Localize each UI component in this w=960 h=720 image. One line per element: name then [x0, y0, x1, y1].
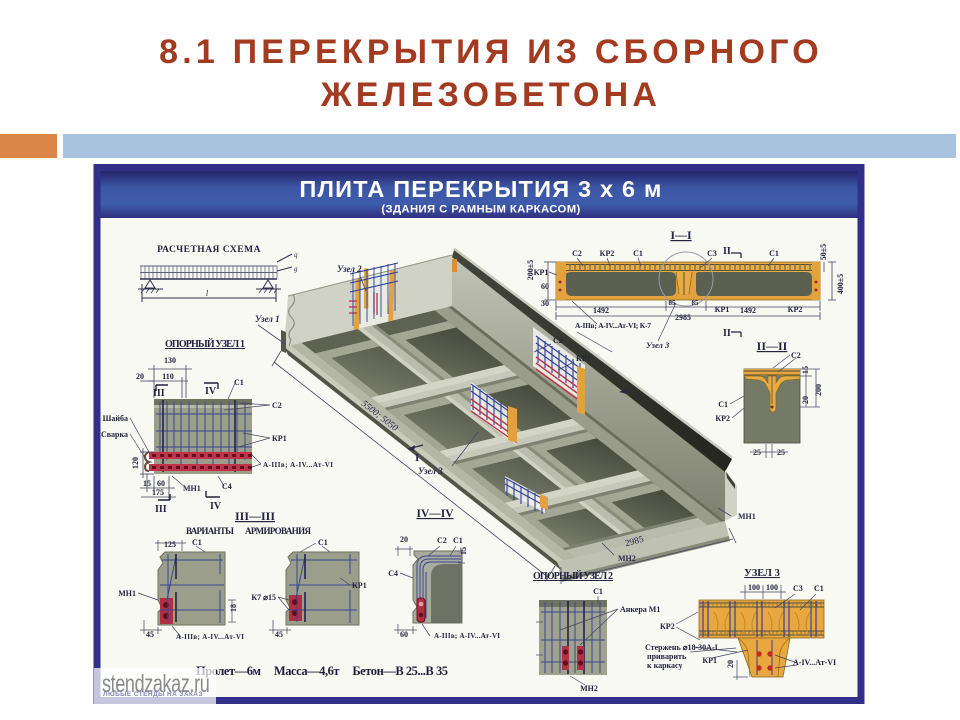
svg-text:КР2: КР2	[600, 249, 615, 258]
svg-text:РАСЧЕТНАЯ СХЕМА: РАСЧЕТНАЯ СХЕМА	[157, 245, 261, 255]
svg-text:ОПОРНЫЙ УЗЕЛ 1: ОПОРНЫЙ УЗЕЛ 1	[165, 338, 245, 350]
svg-text:IV: IV	[210, 501, 222, 512]
svg-text:I—I: I—I	[670, 228, 692, 242]
svg-text:С1: С1	[318, 538, 328, 547]
svg-text:IV: IV	[205, 386, 217, 397]
svg-text:С1: С1	[718, 400, 728, 409]
svg-text:IV—IV: IV—IV	[416, 508, 454, 520]
svg-text:КР1: КР1	[534, 268, 549, 277]
svg-text:С2: С2	[791, 351, 801, 360]
svg-text:КР1: КР1	[352, 581, 367, 590]
svg-text:50±5: 50±5	[819, 244, 828, 260]
svg-text:к каркасу: к каркасу	[647, 661, 682, 670]
svg-text:85: 85	[692, 299, 700, 307]
svg-text:200: 200	[814, 384, 823, 396]
svg-text:III: III	[153, 388, 165, 399]
svg-text:С2: С2	[272, 401, 282, 410]
svg-text:МН2: МН2	[580, 684, 598, 693]
svg-text:КР1: КР1	[715, 305, 730, 314]
svg-text:q: q	[294, 251, 298, 259]
svg-text:1492: 1492	[593, 306, 609, 315]
svg-text:200±5: 200±5	[526, 260, 535, 280]
svg-text:20: 20	[726, 660, 735, 668]
svg-text:2985: 2985	[675, 313, 691, 322]
svg-text:Сварка: Сварка	[101, 430, 128, 439]
svg-text:АРМИРОВАНИЯ: АРМИРОВАНИЯ	[245, 526, 312, 536]
svg-text:ОПОРНЫЙ УЗЕЛ 2: ОПОРНЫЙ УЗЕЛ 2	[533, 570, 613, 582]
svg-text:С2: С2	[553, 336, 563, 345]
svg-text:130: 130	[164, 356, 176, 365]
svg-text:400±5: 400±5	[836, 274, 845, 294]
svg-text:МН2: МН2	[618, 554, 636, 563]
svg-text:II—II: II—II	[757, 339, 788, 353]
svg-text:А-IV...Ат-VI: А-IV...Ат-VI	[793, 658, 836, 667]
svg-text:60: 60	[157, 479, 165, 488]
svg-text:1492: 1492	[740, 306, 756, 315]
svg-text:II: II	[723, 246, 731, 257]
svg-text:100: 100	[748, 583, 760, 592]
svg-text:КР2: КР2	[660, 622, 675, 631]
svg-text:КР2: КР2	[715, 414, 730, 423]
svg-text:20: 20	[400, 535, 408, 544]
svg-text:А-IIIв; А-IV...Ат-VI; К-7: А-IIIв; А-IV...Ат-VI; К-7	[575, 321, 651, 330]
svg-text:III—III: III—III	[235, 509, 275, 523]
svg-text:Узел 3: Узел 3	[418, 466, 443, 476]
svg-text:С1: С1	[769, 249, 779, 258]
svg-text:С4: С4	[388, 569, 398, 578]
svg-text:II: II	[723, 328, 731, 339]
svg-text:45: 45	[146, 630, 154, 639]
svg-text:МН1: МН1	[118, 589, 136, 598]
svg-text:Узел 3: Узел 3	[646, 340, 670, 350]
svg-text:С1: С1	[453, 536, 463, 545]
svg-text:20: 20	[801, 396, 810, 404]
svg-text:ВАРИАНТЫ: ВАРИАНТЫ	[186, 526, 234, 536]
svg-text:Анкера М1: Анкера М1	[620, 605, 660, 614]
svg-text:МН1: МН1	[738, 512, 756, 521]
svg-text:Узел 1: Узел 1	[255, 314, 280, 324]
svg-text:18: 18	[229, 604, 238, 612]
svg-text:УЗЕЛ 3: УЗЕЛ 3	[744, 568, 780, 579]
svg-text:С4: С4	[222, 482, 232, 491]
svg-text:15: 15	[143, 479, 151, 488]
svg-text:А-IIIв; А-IV...Ат-VI: А-IIIв; А-IV...Ат-VI	[434, 632, 500, 640]
svg-text:С1: С1	[633, 249, 643, 258]
svg-text:С2: С2	[572, 249, 582, 258]
svg-text:I: I	[415, 452, 419, 464]
svg-text:100: 100	[766, 583, 778, 592]
svg-text:МН1: МН1	[183, 484, 201, 493]
svg-text:Пролет—6м Масса—4,6т Б: Пролет—6м Масса—4,6т Бетон—В 25...В 35	[196, 664, 448, 678]
svg-text:КР1: КР1	[576, 354, 591, 363]
svg-text:С3: С3	[707, 249, 717, 258]
svg-text:Узел 2: Узел 2	[337, 264, 362, 274]
svg-text:45: 45	[275, 630, 283, 639]
svg-text:Шайба: Шайба	[103, 414, 128, 423]
svg-text:А-IIIв; А-IV...Ат-VI: А-IIIв; А-IV...Ат-VI	[263, 461, 333, 469]
svg-text:60: 60	[400, 630, 408, 639]
svg-text:С2: С2	[437, 536, 447, 545]
svg-text:КР1: КР1	[272, 434, 287, 443]
svg-text:КР1: КР1	[702, 656, 717, 665]
svg-text:15: 15	[801, 366, 810, 374]
svg-text:20: 20	[136, 372, 144, 381]
svg-text:приварить: приварить	[647, 652, 687, 661]
svg-text:С1: С1	[593, 587, 603, 596]
svg-text:ПЛИТА ПЕРЕКРЫТИЯ 3 х 6 м: ПЛИТА ПЕРЕКРЫТИЯ 3 х 6 м	[299, 176, 662, 202]
svg-text:А-IIIв; А-IV...Ат-VI: А-IIIв; А-IV...Ат-VI	[176, 633, 244, 641]
svg-text:К7 ⌀15: К7 ⌀15	[251, 593, 276, 602]
svg-text:110: 110	[162, 372, 174, 381]
svg-text:I: I	[637, 391, 641, 403]
svg-text:III: III	[155, 504, 167, 515]
svg-text:С1: С1	[814, 584, 824, 593]
svg-text:175: 175	[152, 488, 164, 497]
svg-text:25: 25	[777, 448, 785, 457]
svg-text:(ЗДАНИЯ С РАМНЫМ КАРКАСОМ): (ЗДАНИЯ С РАМНЫМ КАРКАСОМ)	[381, 204, 580, 216]
svg-text:g: g	[294, 265, 298, 273]
svg-text:С3: С3	[793, 584, 803, 593]
svg-text:25: 25	[753, 448, 761, 457]
svg-text:120: 120	[131, 457, 140, 469]
svg-text:КР2: КР2	[788, 305, 803, 314]
svg-text:С1: С1	[192, 538, 202, 547]
svg-text:125: 125	[164, 540, 176, 549]
